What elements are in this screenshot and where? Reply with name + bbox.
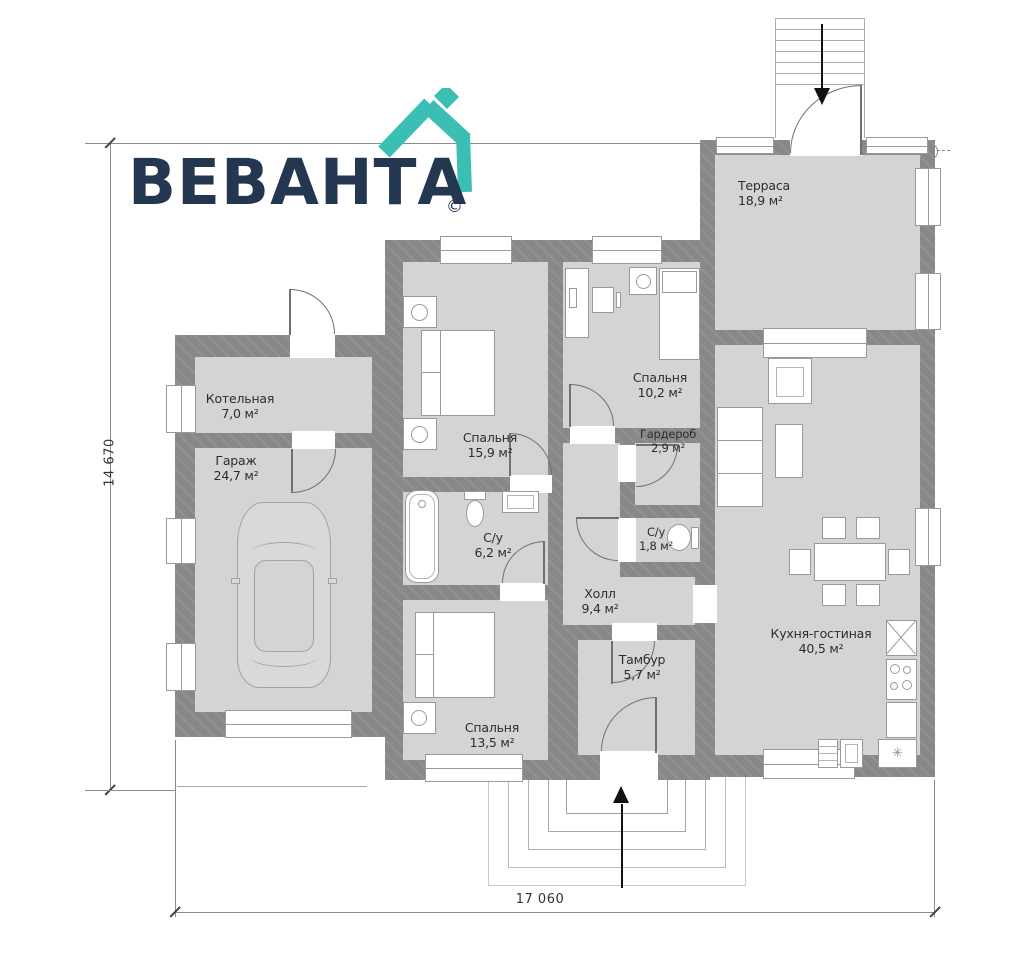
lamp-icon (411, 304, 428, 321)
double-bed-icon (415, 612, 495, 698)
burner-icon (890, 664, 900, 674)
burner-icon (890, 682, 898, 690)
double-bed-icon (421, 330, 495, 416)
extension-line-left-corner (175, 740, 176, 917)
terrace-stairs-icon (775, 18, 865, 85)
opening-hall-kitchen (693, 585, 717, 623)
door-leaf (576, 517, 619, 519)
car-icon (237, 492, 333, 695)
room-label-bath2: С/у1,8 м² (618, 526, 694, 554)
room-label-bedroom1: Спальня15,9 м² (430, 430, 550, 460)
sofa-icon (717, 407, 763, 507)
door-gap-entrance (600, 751, 658, 781)
chair-icon (616, 292, 621, 308)
bed-pillow-line (422, 372, 440, 373)
door-arc-boiler-ext (290, 289, 335, 334)
burner-icon (902, 680, 912, 690)
extension-line-right-corner (934, 780, 935, 917)
dishwasher-icon (818, 739, 838, 768)
room-label-tambour: Тамбур5,7 м² (596, 652, 688, 682)
chair-icon (822, 517, 846, 539)
brand-logo-text: ВЕВАНТА (128, 146, 467, 219)
table-icon (592, 287, 614, 313)
armchair-seat (776, 367, 804, 397)
chair-icon (856, 517, 880, 539)
room-label-bedroom2: Спальня10,2 м² (598, 370, 722, 400)
door-gap-bath1 (500, 583, 545, 601)
room-label-kitchen: Кухня-гостиная40,5 м² (745, 626, 897, 656)
room-label-bath1: С/у6,2 м² (448, 530, 538, 560)
room-label-boiler: Котельная7,0 м² (182, 391, 298, 421)
lamp-icon (411, 710, 427, 726)
room-label-garage: Гараж24,7 м² (180, 453, 292, 483)
garage-door (225, 710, 352, 738)
door-leaf (569, 384, 571, 427)
door-leaf (289, 289, 291, 335)
room-label-terrace: Терраса18,9 м² (738, 178, 838, 208)
dining-table-icon (814, 543, 886, 581)
entry-arrowhead-icon (613, 786, 629, 803)
door-gap-bedroom2 (570, 426, 615, 444)
bed-pillow-line (433, 613, 434, 697)
bed-pillow-line (440, 331, 441, 415)
pillow-icon (662, 271, 697, 293)
sliding-door-terrace (763, 328, 867, 358)
room-label-bedroom3: Спальня13,5 м² (432, 720, 552, 750)
window-garage-2 (166, 643, 196, 691)
sofa-cushion-line (718, 440, 762, 441)
sink-inner (507, 495, 534, 509)
floor-plan: 14 670 17 060 (0, 0, 1024, 970)
bed-pillow-line (416, 654, 433, 655)
dimension-width-label: 17 060 (480, 892, 600, 907)
toilet-icon (466, 500, 484, 527)
window-kitchen-east (915, 508, 941, 566)
door-leaf (543, 541, 545, 584)
door-leaf (655, 697, 657, 753)
extension-line-bottom-left (85, 790, 175, 791)
window-garage-1 (166, 518, 196, 564)
chair-icon (888, 549, 910, 575)
dimension-height-label: 14 670 (103, 413, 118, 513)
lamp-icon (411, 426, 428, 443)
lamp-icon (636, 274, 651, 289)
chair-icon (789, 549, 811, 575)
window-bedroom3 (425, 754, 523, 782)
cabinet-inner (845, 744, 858, 763)
door-gap-boiler-garage (292, 431, 335, 449)
computer-icon (569, 288, 577, 308)
chair-icon (856, 584, 880, 606)
toilet-tank-icon (464, 491, 486, 500)
sink-star-icon: ✳ (892, 746, 903, 761)
window-terrace-east-1 (915, 168, 941, 226)
window-bedroom2 (592, 236, 662, 264)
stairs-arrowhead-icon (814, 88, 830, 105)
room-label-wardrobe: Гардероб2,9 м² (624, 428, 712, 456)
door-gap-tambour-hall (612, 623, 657, 641)
copyright-icon: © (446, 197, 463, 217)
door-leaf (860, 85, 862, 155)
door-gap-boiler-ext (290, 334, 335, 358)
stairs-arrow-icon (821, 24, 823, 90)
burner-icon (903, 666, 911, 674)
drain-icon (418, 500, 426, 508)
window-terrace-north-2 (866, 137, 928, 154)
room-label-hall: Холл9,4 м² (558, 586, 642, 616)
window-terrace-east-2 (915, 273, 941, 330)
window-terrace-north-1 (716, 137, 774, 154)
kitchen-counter (886, 702, 917, 738)
dimension-line-bottom (175, 912, 935, 913)
window-bedroom1 (440, 236, 512, 264)
driveway-line (177, 786, 367, 787)
sofa-cushion-line (718, 473, 762, 474)
coffee-table-icon (775, 424, 803, 478)
chair-icon (822, 584, 846, 606)
entry-arrow-icon (621, 804, 623, 888)
